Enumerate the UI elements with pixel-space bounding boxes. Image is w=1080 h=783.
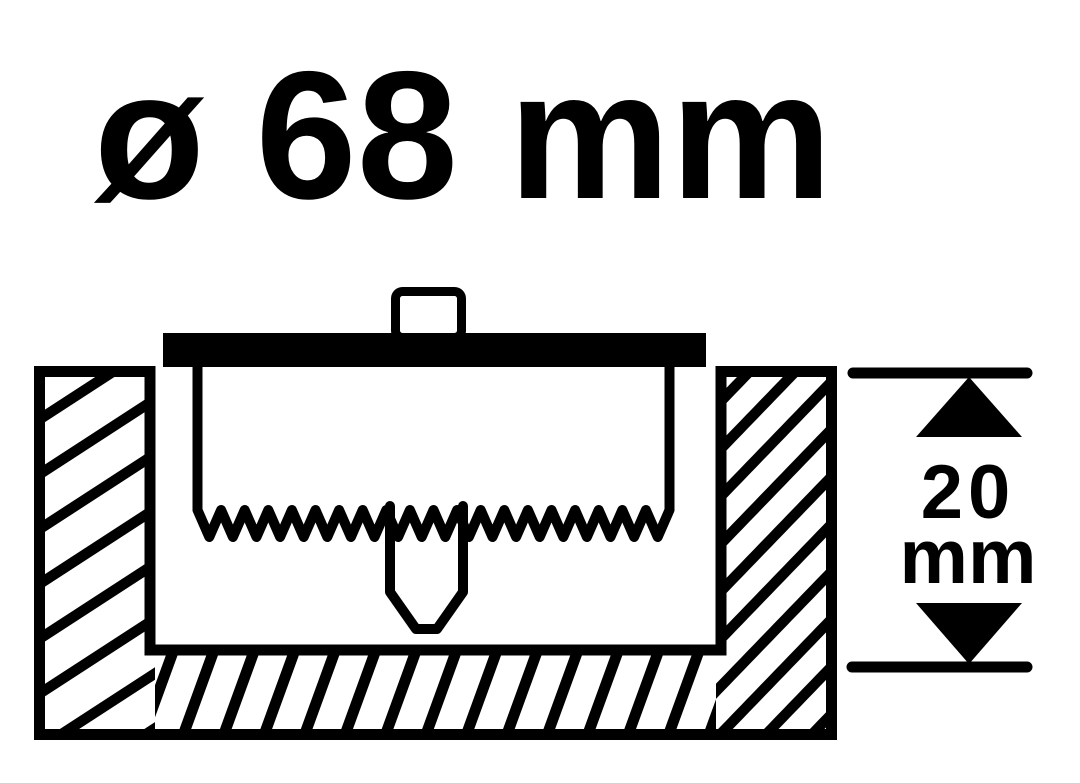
workpiece-right-wall-hatch <box>716 366 837 740</box>
hole-saw-shank <box>396 292 462 338</box>
workpiece-left-wall-hatch <box>34 366 155 740</box>
hole-saw-cap <box>163 333 706 367</box>
diameter-title: ø 68 mm <box>94 33 832 237</box>
depth-dimension: 20 mm <box>852 373 1036 667</box>
diagram-canvas: 20 mm ø 68 mm <box>0 0 1080 783</box>
hole-saw-depth-diagram: 20 mm ø 68 mm <box>0 0 1080 783</box>
depth-up-arrow-icon <box>916 377 1022 437</box>
hole-saw <box>163 292 706 630</box>
workpiece-bottom-hatch <box>155 645 716 740</box>
depth-down-arrow-icon <box>916 603 1022 664</box>
depth-unit-label: mm <box>900 514 1037 600</box>
